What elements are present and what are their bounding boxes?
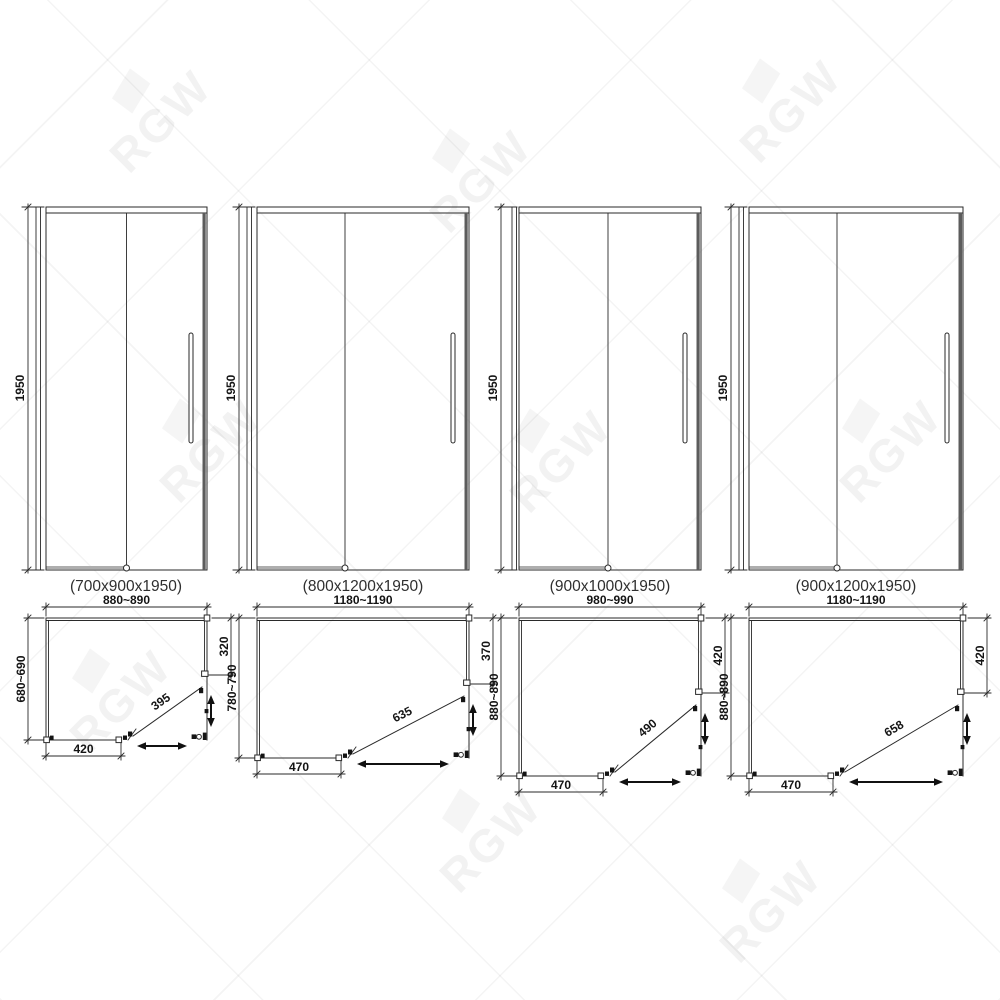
door-handle <box>189 333 193 443</box>
slide-direction-arrow-vertical <box>469 704 477 736</box>
threshold-rail <box>750 566 838 570</box>
door-plan-4: 1180~1190 880~890 658 <box>719 593 1000 805</box>
side-panel-dimension-label: 420 <box>973 645 987 665</box>
wall-profile-right <box>959 213 963 570</box>
height-dimension: 1950 <box>716 204 747 573</box>
plan-left-dimension: 780~790 <box>225 614 255 762</box>
plan-bottom-dimension: 470 <box>515 778 607 796</box>
wall-segment-dimension-label: 470 <box>781 778 801 792</box>
door-leaf-dimension-label: 490 <box>635 716 660 740</box>
roller-guide <box>124 565 130 571</box>
watermark-rgw: RGW <box>79 39 223 183</box>
depth-dimension-label: 880~890 <box>717 673 731 720</box>
wall-profile-left <box>247 207 252 570</box>
plan-top-dimension: 980~990 <box>515 593 705 616</box>
plan-left-dimension: 680~690 <box>14 614 44 744</box>
door-elevation-2: 1950 (800x1200x1950) <box>227 200 483 602</box>
threshold-rail <box>258 566 346 570</box>
depth-dimension-label: 780~790 <box>225 664 239 711</box>
rgw-logo-icon <box>432 129 470 174</box>
plan-left-dimension: 880~890 <box>487 614 517 780</box>
plan-bottom-dimension: 470 <box>745 778 837 796</box>
wall-segment-dimension-label: 470 <box>551 778 571 792</box>
depth-dimension-label: 880~890 <box>487 673 501 720</box>
width-dimension-label: 880~890 <box>103 593 150 607</box>
rgw-logo-icon <box>722 859 760 904</box>
slide-direction-arrow-vertical <box>963 713 971 745</box>
enclosure-walls <box>255 615 472 761</box>
sliding-door-leaf: 395 <box>128 687 202 740</box>
enclosure-walls <box>747 615 966 779</box>
plan-top-dimension: 1180~1190 <box>745 593 967 616</box>
height-dimension-label: 1950 <box>224 374 238 401</box>
slide-direction-arrow-horizontal <box>357 760 449 768</box>
sliding-door-leaf: 635 <box>348 696 464 758</box>
threshold-rail <box>47 566 127 570</box>
width-dimension-label: 1180~1190 <box>826 593 885 607</box>
door-elevation-3: 1950 (900x1000x1950) <box>489 200 715 602</box>
slide-direction-arrow-horizontal <box>137 742 187 750</box>
enclosure-walls <box>517 615 704 779</box>
roller-guide <box>342 565 348 571</box>
wall-segment-dimension-label: 470 <box>289 760 309 774</box>
wall-segment-dimension-label: 420 <box>73 742 93 756</box>
door-leaf-dimension-label: 658 <box>882 717 907 739</box>
sliding-door-leaf: 490 <box>610 705 696 776</box>
plan-bottom-dimension: 420 <box>42 742 125 760</box>
watermark-text: RGW <box>709 849 833 973</box>
door-elevation-4: 1950 (900x1200x1950) <box>719 200 977 602</box>
wall-profile-left <box>512 207 517 570</box>
door-handle <box>451 333 455 443</box>
slide-direction-arrow-horizontal <box>619 778 681 786</box>
plan-hardware <box>261 697 470 758</box>
wall-profile-right <box>697 213 700 570</box>
roller-guide <box>834 565 840 571</box>
door-plan-3: 980~990 880~890 490 <box>489 593 749 805</box>
wall-profile-right <box>465 213 468 570</box>
watermark-text: RGW <box>99 59 223 183</box>
slide-direction-arrow-vertical <box>701 713 709 745</box>
slide-direction-arrow-horizontal <box>849 778 943 786</box>
rgw-logo-icon <box>112 69 150 114</box>
height-dimension-label: 1950 <box>716 374 730 401</box>
technical-drawing-sheet: RGW RGW RGW RGW RGW RGW RGW RGW RGW 1950… <box>0 0 1000 1000</box>
width-dimension-label: 1180~1190 <box>333 593 392 607</box>
door-frame <box>749 207 963 570</box>
width-dimension-label: 980~990 <box>586 593 633 607</box>
wall-profile-left <box>739 207 744 570</box>
depth-dimension-label: 680~690 <box>14 655 28 702</box>
plan-hardware <box>50 688 208 740</box>
plan-hardware <box>753 706 964 776</box>
door-frame <box>257 207 469 570</box>
wall-profile-right <box>203 213 206 570</box>
door-handle <box>945 333 949 443</box>
door-handle <box>683 333 687 443</box>
door-plan-2: 1180~1190 780~790 635 <box>227 593 517 805</box>
plan-left-dimension: 880~890 <box>717 614 747 780</box>
threshold-rail <box>520 566 609 570</box>
wall-profile-left <box>36 207 41 570</box>
plan-bottom-dimension: 470 <box>253 760 345 778</box>
height-dimension: 1950 <box>13 204 44 573</box>
height-dimension-label: 1950 <box>486 374 500 401</box>
sliding-door-leaf: 658 <box>840 705 958 776</box>
watermark-rgw: RGW <box>709 29 853 173</box>
watermark-rgw: RGW <box>689 829 833 973</box>
watermark-text: RGW <box>729 49 853 173</box>
height-dimension-label: 1950 <box>13 374 27 401</box>
plan-top-dimension: 880~890 <box>42 593 211 616</box>
plan-right-dimension: 420 <box>965 614 991 697</box>
plan-hardware <box>523 706 702 776</box>
door-frame <box>519 207 701 570</box>
roller-guide <box>605 565 611 571</box>
door-elevation-1: 1950 (700x900x1950) <box>16 200 221 602</box>
plan-top-dimension: 1180~1190 <box>253 593 473 616</box>
door-leaf-dimension-label: 635 <box>390 704 414 726</box>
rgw-logo-icon <box>742 59 780 104</box>
enclosure-walls <box>44 615 210 743</box>
height-dimension: 1950 <box>224 204 255 573</box>
